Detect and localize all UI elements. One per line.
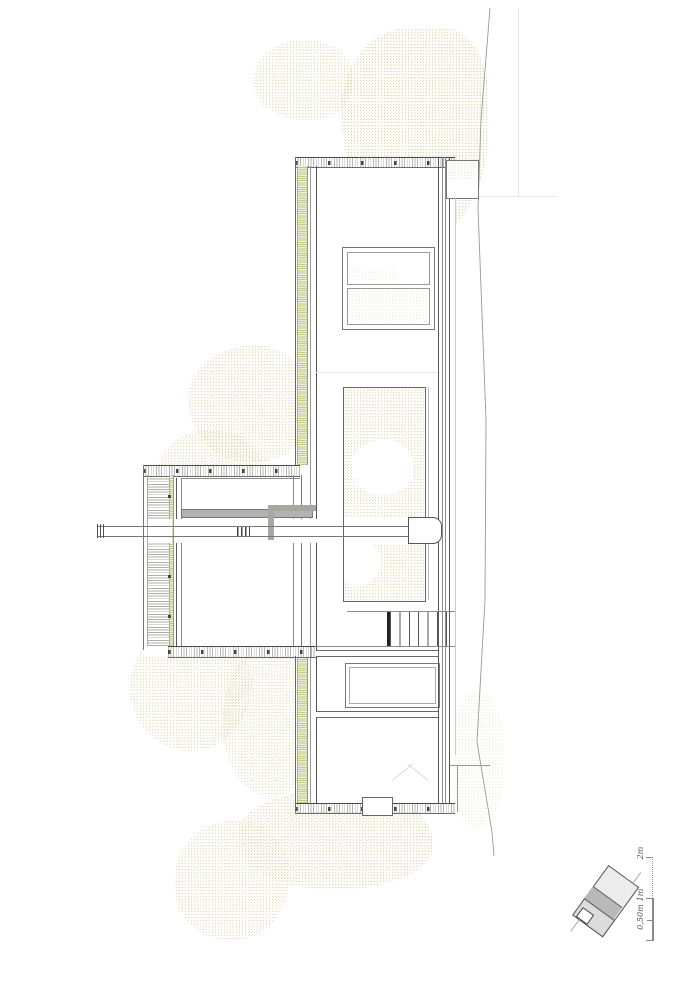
deck-tick — [168, 495, 171, 498]
wall-left-outer — [295, 656, 296, 812]
interior-wall-left — [310, 166, 317, 803]
patio-void — [343, 387, 426, 602]
scale-bar: 2m 1m 0,50m — [610, 840, 670, 950]
window-pane-dots — [349, 266, 399, 282]
deck-tick — [168, 615, 171, 618]
furniture-rect-inner — [349, 667, 436, 704]
floor-plan-canvas: 2m 1m 0,50m — [0, 0, 699, 990]
wall-left-outer — [295, 157, 296, 465]
wing-bottom-wall — [168, 646, 316, 658]
terrace-step-line — [457, 765, 458, 812]
scale-label-2m: 2m — [636, 844, 646, 862]
wing-right-line — [301, 475, 302, 646]
key-plan-axis-line — [570, 919, 580, 932]
wing-room-line — [181, 478, 300, 479]
door-opening — [292, 519, 317, 543]
reference-line — [478, 196, 556, 197]
scale-label-1m: 1m — [636, 886, 646, 904]
scale-bar-dotted-segment — [652, 857, 653, 898]
wing-right-line — [293, 475, 294, 646]
site-wall-line — [455, 198, 456, 755]
scale-label-0-50m: 0,50m — [636, 903, 646, 931]
door-opening — [175, 519, 182, 543]
door-opening — [148, 519, 172, 543]
walkway-mid-dashes — [237, 527, 250, 536]
partition-wall — [316, 650, 438, 657]
scale-tick-2m — [646, 857, 653, 858]
entry-walkway-line-top — [98, 526, 408, 527]
scale-tick-0 — [646, 940, 653, 941]
entry-porch-block — [268, 505, 274, 540]
walkway-end-ticks — [97, 524, 106, 538]
chimney-dots — [448, 162, 476, 181]
deck-green-edge — [169, 475, 174, 646]
wall-right-outer — [445, 157, 450, 803]
patio-cloud — [352, 440, 414, 495]
entry-walkway-line-bottom — [98, 536, 408, 537]
stair-base-line — [316, 646, 455, 647]
stair-run — [387, 612, 447, 646]
green-facade-strip-upper — [297, 166, 308, 465]
patio-outline-double — [428, 387, 429, 600]
scale-tick-1m — [646, 898, 653, 899]
reference-line — [518, 8, 519, 196]
terrace-step-line — [450, 765, 490, 766]
wing-partition-wall — [176, 478, 182, 646]
bottom-step — [362, 797, 393, 816]
ceiling-line — [316, 372, 438, 373]
wing-left-edge — [143, 465, 144, 650]
wall-top — [295, 157, 455, 168]
green-facade-strip-lower — [297, 657, 308, 803]
entry-door-box — [408, 517, 442, 544]
window-pane-dots — [349, 290, 427, 322]
entry-porch-block — [268, 505, 316, 511]
deck-tick — [168, 575, 171, 578]
partition-wall — [316, 711, 438, 718]
scale-tick-0-50m — [647, 920, 653, 921]
